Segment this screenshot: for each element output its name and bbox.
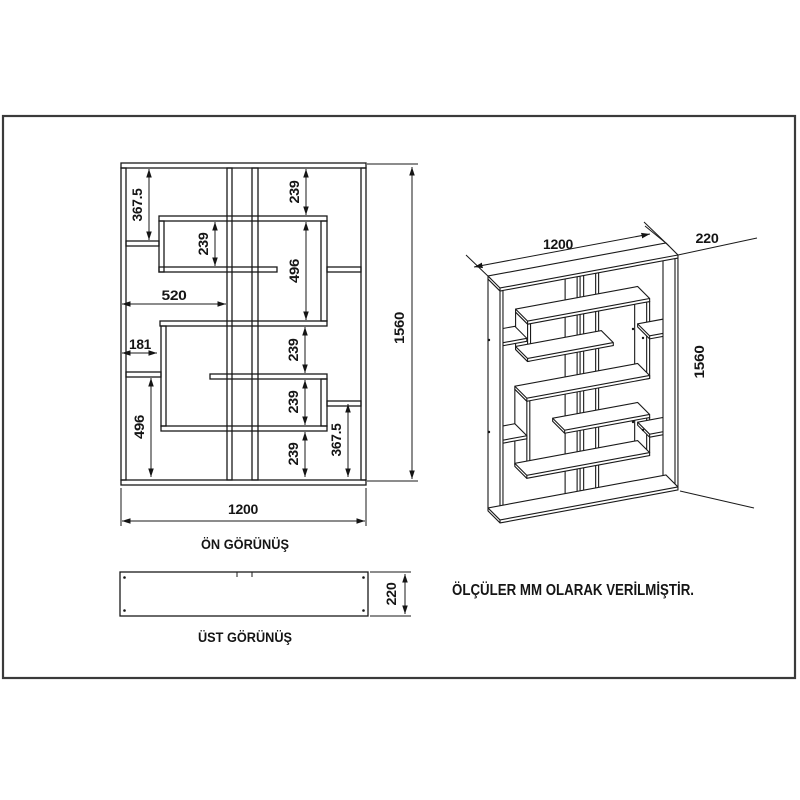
- units-note: ÖLÇÜLER MM OLARAK VERİLMİŞTİR.: [452, 580, 694, 599]
- front-panel: [126, 241, 159, 246]
- dim-520: 520: [162, 287, 188, 303]
- iso-panel: [663, 246, 678, 487]
- front-panel: [126, 372, 161, 377]
- dim-220-iso: 220: [696, 230, 720, 246]
- iso-panel: [516, 287, 650, 325]
- top-view-outline: [120, 572, 368, 616]
- iso-panel: [488, 243, 678, 291]
- front-view-dimension-labels: 367.5 239 239 496 520 181 239 239 239 49…: [129, 180, 407, 517]
- front-panel: [321, 221, 327, 321]
- iso-view-panels: [488, 243, 678, 523]
- front-panel: [327, 267, 361, 272]
- iso-panel: [515, 441, 650, 479]
- dim-1200-front: 1200: [228, 501, 259, 517]
- front-panel: [159, 216, 327, 221]
- dim-239-mid-b: 239: [285, 390, 301, 414]
- front-panel: [161, 426, 327, 431]
- top-view-fitting-dots: [123, 576, 365, 612]
- iso-panel: [488, 278, 503, 519]
- dim-220-top-view: 220: [383, 582, 399, 606]
- dim-496-lower-left: 496: [131, 414, 147, 439]
- dim-239-upper-inner: 239: [195, 232, 211, 256]
- front-panel: [121, 163, 366, 168]
- front-panel: [321, 379, 327, 426]
- dim-367-5-top-left: 367.5: [129, 188, 145, 221]
- front-panel: [227, 168, 232, 480]
- dim-239-mid-a: 239: [285, 338, 301, 362]
- dim-239-mid-c: 239: [285, 442, 301, 466]
- top-view-title: ÜST GÖRÜNÜŞ: [198, 630, 292, 645]
- iso-panel: [515, 363, 650, 401]
- dim-181: 181: [129, 336, 151, 352]
- front-panel: [159, 221, 164, 272]
- front-panel: [361, 168, 366, 480]
- front-panel: [121, 168, 126, 480]
- dim-1560-front: 1560: [391, 311, 407, 344]
- technical-drawing-page: 367.5 239 239 496 520 181 239 239 239 49…: [0, 0, 800, 800]
- iso-view: 1200 220 1560: [466, 222, 757, 523]
- front-view-title: ÖN GÖRÜNÜŞ: [201, 537, 289, 552]
- dim-1200-iso: 1200: [543, 236, 574, 252]
- dim-496-upper-box: 496: [286, 258, 302, 283]
- dim-1560-iso: 1560: [691, 345, 707, 379]
- dim-367-5-lower-right: 367.5: [328, 423, 344, 456]
- front-panel: [252, 168, 258, 480]
- technical-drawing-canvas: 367.5 239 239 496 520 181 239 239 239 49…: [0, 0, 800, 800]
- top-view: 220 ÜST GÖRÜNÜŞ: [120, 572, 411, 645]
- front-panel: [159, 267, 277, 272]
- front-panel: [121, 480, 366, 485]
- front-panel: [161, 326, 166, 426]
- front-panel: [160, 321, 327, 326]
- front-view: 367.5 239 239 496 520 181 239 239 239 49…: [121, 163, 418, 552]
- iso-panel: [488, 475, 678, 523]
- dim-239-top-right: 239: [286, 180, 302, 204]
- front-panel: [327, 401, 361, 406]
